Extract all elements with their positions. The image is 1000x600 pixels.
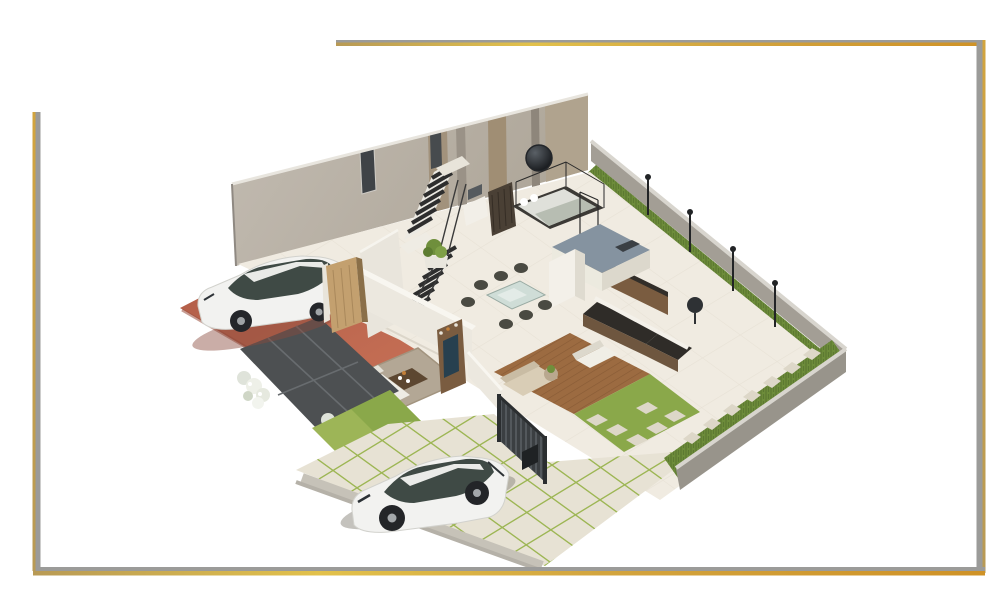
dining-chair	[461, 297, 475, 307]
planter-box	[424, 256, 448, 268]
tea-set	[398, 376, 402, 380]
frame-right-gold	[983, 40, 986, 573]
window-panel	[430, 131, 442, 169]
shelf-item	[446, 327, 450, 331]
dining-chair	[519, 310, 533, 320]
frame-left-gold	[33, 112, 36, 571]
fence-post	[497, 394, 501, 442]
deck-plant	[547, 365, 555, 373]
tea-set	[406, 379, 410, 383]
floor-plan-image	[0, 0, 1000, 600]
dining-chair	[499, 319, 513, 329]
tv-screen	[443, 334, 459, 378]
frame-bottom-gray	[33, 567, 985, 571]
lamp-head	[645, 174, 651, 180]
wall-wood-panel	[488, 115, 507, 197]
refrigerator-side	[575, 249, 585, 301]
frame-bottom-gold	[33, 571, 985, 576]
dining-chair	[474, 280, 488, 290]
frame-top-gray	[336, 40, 985, 43]
lamp-head	[687, 209, 693, 215]
page	[0, 0, 1000, 600]
dining-chair	[538, 300, 552, 310]
shrub-cluster	[237, 371, 270, 409]
shelf-item	[439, 331, 443, 335]
dining-chair	[494, 271, 508, 281]
frame-left-gray	[36, 112, 41, 567]
shrub	[435, 246, 447, 258]
pillow	[520, 198, 528, 206]
pedestal-fan	[687, 297, 703, 313]
wall-art-sphere	[526, 145, 552, 171]
shrub	[423, 247, 433, 257]
lamp-head	[730, 246, 736, 252]
wheel-hub	[388, 514, 397, 523]
lamp-head	[772, 280, 778, 286]
door-leaf	[326, 257, 362, 333]
wheel-hub	[316, 309, 323, 316]
pillow	[530, 194, 538, 202]
shelf-item	[454, 323, 458, 327]
wheel-hub	[237, 317, 245, 325]
window-panel	[360, 148, 376, 194]
tea-set	[402, 371, 406, 375]
dining-chair	[514, 263, 528, 273]
frame-top-gold	[336, 43, 985, 47]
wheel-hub	[473, 489, 481, 497]
frame-right-gray	[977, 40, 983, 573]
fence-post	[543, 436, 547, 484]
